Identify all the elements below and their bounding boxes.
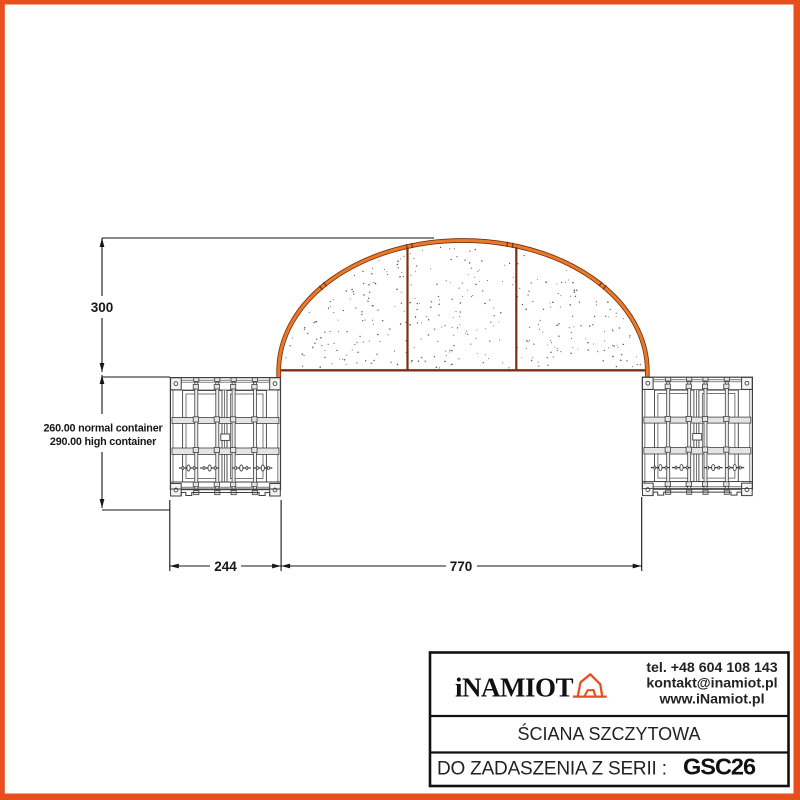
svg-text:ŚCIANA SZCZYTOWA: ŚCIANA SZCZYTOWA — [517, 723, 700, 744]
svg-text:770: 770 — [450, 559, 473, 574]
svg-text:GSC26: GSC26 — [683, 754, 756, 780]
svg-text:244: 244 — [214, 559, 237, 574]
svg-text:300: 300 — [91, 300, 114, 315]
svg-text:kontakt@inamiot.pl: kontakt@inamiot.pl — [646, 676, 777, 692]
svg-text:DO ZADASZENIA Z SERII :: DO ZADASZENIA Z SERII : — [437, 759, 667, 780]
svg-text:290.00 high container: 290.00 high container — [50, 436, 157, 448]
svg-text:tel. +48 604 108 143: tel. +48 604 108 143 — [646, 660, 777, 676]
svg-text:260.00 normal container: 260.00 normal container — [43, 423, 163, 435]
svg-text:www.iNamiot.pl: www.iNamiot.pl — [658, 692, 764, 708]
svg-text:iNAMIOT: iNAMIOT — [455, 673, 573, 703]
